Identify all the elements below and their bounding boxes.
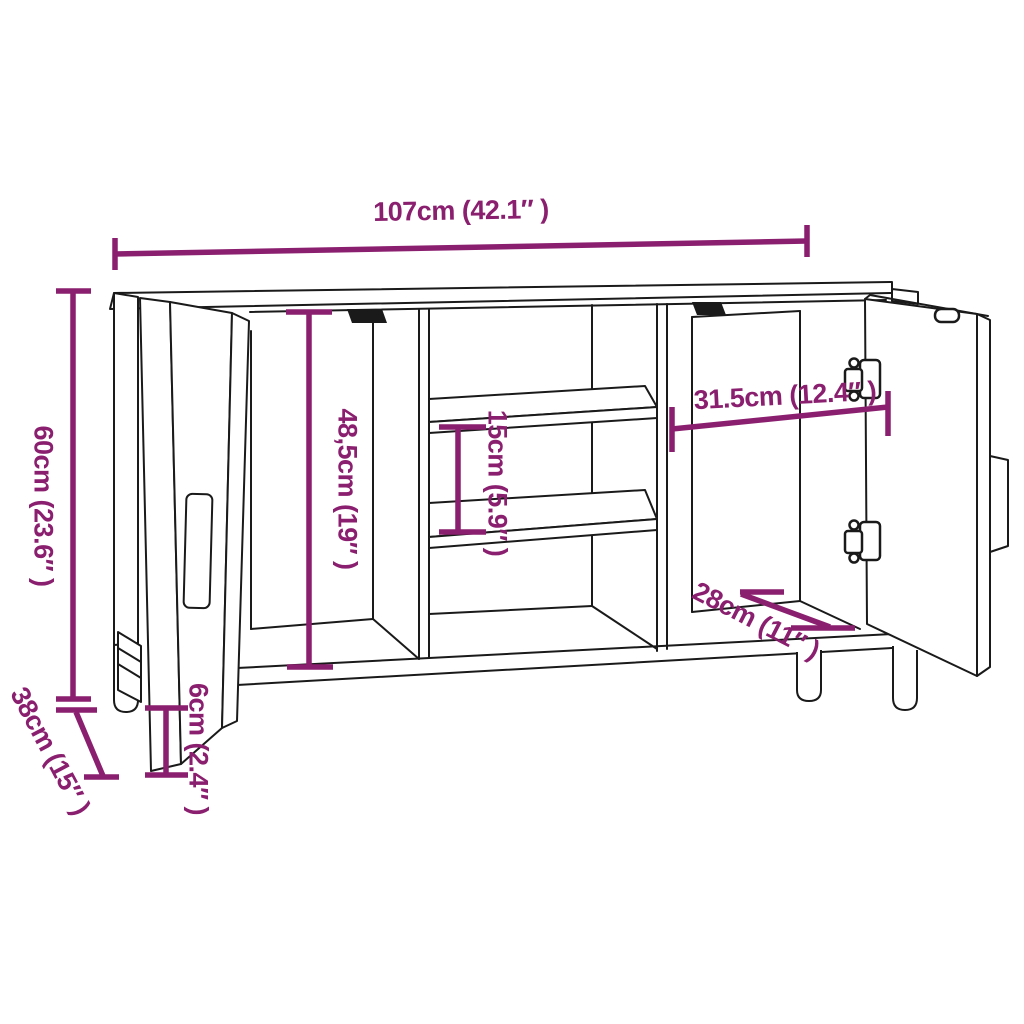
right-leg: [893, 646, 917, 710]
furniture-dimension-diagram: 107cm (42.1″ ) 60cm (23.6″ ) 38cm (15″ )…: [0, 0, 1024, 1024]
left-door-handle: [184, 494, 213, 609]
dim-label-left-inner-height: 48,5cm (19″ ): [334, 408, 361, 569]
middle-shelves: [429, 386, 657, 548]
top-handle-right: [692, 302, 726, 315]
dim-label-overall-height: 60cm (23.6″ ): [30, 425, 57, 586]
right-door-handle: [990, 456, 1008, 552]
door-top-groove: [935, 309, 959, 322]
dim-label-shelf-gap: 15cm (5.9″ ): [484, 410, 511, 557]
right-door: [845, 295, 1008, 676]
dim-label-leg-height: 6cm (2.4″ ): [185, 683, 212, 815]
top-panel: [110, 282, 892, 312]
hinge-bottom: [845, 521, 880, 563]
dim-label-overall-width: 107cm (42.1″ ): [373, 196, 549, 226]
top-handle-left: [347, 309, 387, 323]
